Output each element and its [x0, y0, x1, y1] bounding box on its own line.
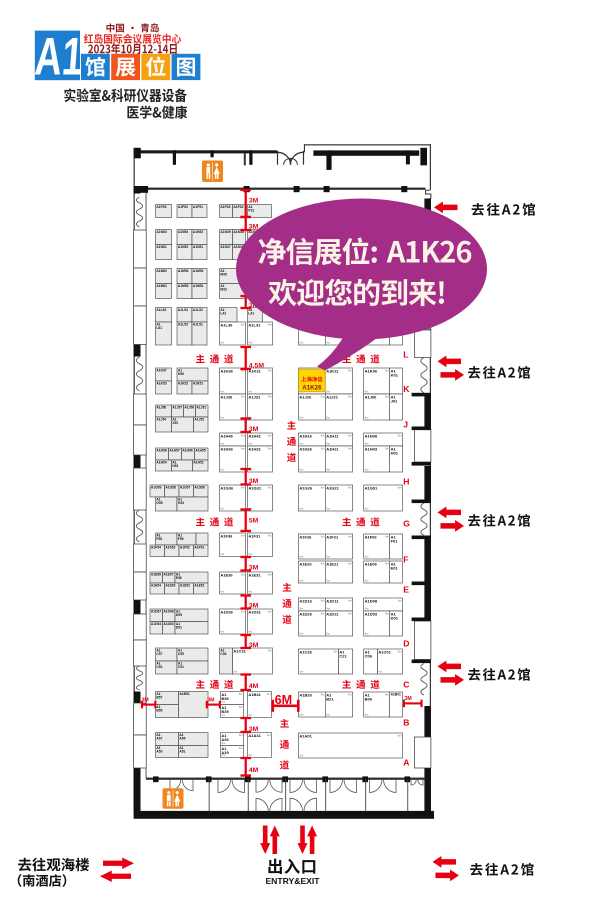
svg-text:A1H26: A1H26	[299, 446, 312, 451]
svg-text:L41: L41	[248, 312, 254, 316]
svg-text:A1J36: A1J36	[220, 394, 233, 399]
svg-text:A1E26: A1E26	[299, 561, 312, 566]
svg-text:H51: H51	[172, 464, 178, 468]
svg-text:A1F51: A1F51	[194, 546, 204, 550]
svg-text:A1E31: A1E31	[248, 572, 261, 577]
svg-text:A1D31: A1D31	[248, 609, 261, 614]
svg-text:A1B01: A1B01	[391, 693, 401, 697]
svg-text:A1H16: A1H16	[299, 433, 312, 438]
svg-text:A1J06: A1J06	[365, 394, 378, 399]
svg-text:A1D26: A1D26	[299, 611, 312, 616]
svg-text:A1F36: A1F36	[220, 533, 233, 538]
svg-text:A1P52: A1P52	[178, 205, 188, 209]
svg-text:E01: E01	[391, 565, 399, 570]
svg-text:L42: L42	[220, 312, 226, 316]
svg-text:A1P33: A1P33	[220, 205, 230, 209]
svg-text:3M: 3M	[249, 603, 259, 610]
svg-text:6M: 6M	[275, 693, 293, 707]
svg-text:A1C01: A1C01	[378, 649, 391, 654]
svg-text:A1F52: A1F52	[180, 546, 190, 550]
svg-text:A1K51: A1K51	[193, 382, 203, 386]
svg-text:C06: C06	[365, 653, 373, 658]
svg-text:A1D03: A1D03	[365, 611, 378, 616]
svg-text:K: K	[403, 384, 410, 394]
svg-text:A1H54: A1H54	[156, 461, 166, 465]
svg-text:B: B	[403, 718, 409, 728]
svg-text:A1M62: A1M62	[156, 269, 167, 273]
svg-text:A1H56: A1H56	[182, 449, 192, 453]
svg-text:A1H03: A1H03	[365, 446, 378, 451]
svg-text:F58: F58	[156, 537, 162, 541]
svg-text:A1J56: A1J56	[184, 406, 194, 410]
svg-text:A1F21: A1F21	[326, 534, 339, 539]
svg-text:A1L52: A1L52	[193, 308, 203, 312]
svg-text:B06: B06	[365, 696, 373, 701]
svg-text:A36: A36	[221, 737, 229, 742]
svg-text:B55: B55	[156, 709, 162, 713]
svg-text:A1G31: A1G31	[248, 485, 261, 490]
svg-text:A1N53: A1N53	[178, 245, 188, 249]
svg-text:J01: J01	[391, 398, 398, 403]
svg-text:A1E36: A1E36	[220, 572, 233, 577]
svg-text:A1M61: A1M61	[156, 284, 167, 288]
svg-text:A1K53: A1K53	[156, 382, 166, 386]
svg-text:C51: C51	[178, 665, 184, 669]
svg-text:M33: M33	[220, 288, 227, 292]
svg-text:A1J26: A1J26	[299, 394, 312, 399]
svg-text:A: A	[403, 758, 409, 768]
svg-text:A1E51: A1E51	[194, 584, 204, 588]
svg-text:C55: C55	[178, 652, 184, 656]
svg-text:A1L54: A1L54	[178, 308, 188, 312]
svg-text:M35: M35	[220, 273, 227, 277]
svg-text:A1L51: A1L51	[193, 323, 203, 327]
svg-text:A1H57: A1H57	[169, 449, 179, 453]
svg-text:A1F06: A1F06	[365, 534, 378, 539]
svg-text:4M: 4M	[249, 767, 259, 774]
svg-text:A1L36: A1L36	[220, 322, 233, 327]
svg-text:C: C	[403, 680, 409, 690]
svg-text:J: J	[403, 420, 408, 430]
svg-text:A1E57: A1E57	[163, 573, 173, 577]
svg-text:3M: 3M	[405, 696, 412, 702]
svg-text:K56: K56	[178, 372, 184, 376]
svg-text:H: H	[403, 477, 409, 487]
svg-text:3M: 3M	[142, 697, 149, 703]
svg-text:P31: P31	[248, 209, 254, 213]
svg-text:A1G57: A1G57	[180, 486, 191, 490]
svg-text:A1B31: A1B31	[248, 692, 261, 697]
svg-text:A1H46: A1H46	[220, 433, 233, 438]
svg-text:A1G36: A1G36	[220, 485, 233, 490]
svg-text:4M: 4M	[249, 683, 259, 690]
svg-text:A1J21: A1J21	[326, 394, 339, 399]
svg-text:A1D63: A1D63	[163, 622, 173, 626]
svg-text:L: L	[403, 350, 408, 360]
svg-text:A1: A1	[33, 26, 86, 86]
svg-text:A1E52: A1E52	[180, 584, 190, 588]
svg-text:3M: 3M	[249, 478, 259, 485]
svg-text:A1J54: A1J54	[156, 418, 166, 422]
svg-text:A1D64: A1D64	[151, 622, 161, 626]
svg-text:A51: A51	[179, 750, 185, 754]
svg-text:A1D66: A1D66	[163, 610, 173, 614]
svg-text:3M: 3M	[249, 198, 259, 205]
svg-text:3M: 3M	[249, 224, 259, 231]
svg-text:A1K57: A1K57	[156, 369, 166, 373]
svg-text:A1B51: A1B51	[179, 692, 189, 696]
svg-text:3M: 3M	[207, 697, 214, 703]
svg-text:A1F53: A1F53	[165, 546, 175, 550]
svg-text:A1F26: A1F26	[299, 534, 312, 539]
svg-text:A1L31: A1L31	[248, 322, 261, 327]
svg-text:A1H31: A1H31	[248, 446, 261, 451]
svg-text:D55: D55	[176, 613, 182, 617]
svg-text:A1E58: A1E58	[151, 573, 161, 577]
svg-text:A1M53: A1M53	[178, 284, 189, 288]
svg-text:A1C31: A1C31	[233, 648, 246, 653]
svg-text:A1N39: A1N39	[220, 230, 230, 234]
svg-text:A1K21: A1K21	[326, 368, 339, 373]
svg-text:F56: F56	[178, 537, 184, 541]
svg-text:A1P53: A1P53	[156, 205, 166, 209]
svg-text:A1E54: A1E54	[151, 584, 161, 588]
svg-text:A1M52: A1M52	[193, 269, 204, 273]
svg-text:A1J31: A1J31	[248, 394, 261, 399]
svg-text:B39: B39	[221, 709, 229, 714]
svg-text:A1C26: A1C26	[299, 649, 312, 654]
svg-text:A1G56: A1G56	[194, 486, 205, 490]
svg-text:A1D67: A1D67	[151, 610, 161, 614]
svg-text:K01: K01	[391, 372, 399, 377]
svg-text:3M: 3M	[249, 642, 259, 649]
svg-text:A57: A57	[156, 737, 162, 741]
svg-text:A1K06: A1K06	[365, 368, 378, 373]
svg-text:A1P32: A1P32	[233, 205, 243, 209]
svg-text:A1D16: A1D16	[299, 598, 312, 603]
svg-text:A1H08: A1H08	[365, 433, 378, 438]
svg-text:A1F54: A1F54	[151, 546, 161, 550]
svg-text:A1K26: A1K26	[302, 385, 322, 392]
svg-text:F: F	[403, 555, 408, 565]
svg-text:A1D36: A1D36	[220, 609, 233, 614]
svg-text:ENTRY&EXIT: ENTRY&EXIT	[265, 876, 320, 886]
svg-text:A1H52: A1H52	[193, 461, 203, 465]
svg-text:A1N37: A1N37	[220, 245, 230, 249]
svg-text:A1H36: A1H36	[220, 446, 233, 451]
svg-text:A1G01: A1G01	[365, 485, 378, 490]
svg-text:A1H11: A1H11	[326, 433, 339, 438]
svg-text:A1K52: A1K52	[178, 382, 188, 386]
svg-text:A1H21: A1H21	[326, 446, 339, 451]
svg-text:J53: J53	[172, 421, 178, 425]
svg-text:A1L63: A1L63	[156, 308, 166, 312]
svg-text:B36: B36	[221, 696, 229, 701]
svg-text:A1M54: A1M54	[178, 269, 189, 273]
svg-text:A1N54: A1N54	[178, 230, 188, 234]
svg-text:A1N51: A1N51	[193, 245, 203, 249]
svg-text:A1G21: A1G21	[326, 485, 339, 490]
svg-text:L61: L61	[156, 326, 162, 330]
svg-text:4.5M: 4.5M	[249, 363, 264, 370]
svg-text:A1P51: A1P51	[193, 205, 203, 209]
svg-text:D01: D01	[391, 615, 399, 620]
svg-text:E56: E56	[176, 576, 182, 580]
svg-text:A1B26: A1B26	[299, 692, 312, 697]
svg-text:A1E06: A1E06	[365, 561, 378, 566]
svg-text:3M: 3M	[249, 565, 259, 572]
svg-text:A1E21: A1E21	[326, 561, 339, 566]
svg-text:A1N61: A1N61	[156, 245, 166, 249]
svg-text:G51: G51	[178, 501, 184, 505]
svg-text:A1J58: A1J58	[156, 406, 166, 410]
svg-text:A1D08: A1D08	[365, 598, 378, 603]
svg-text:G55: G55	[156, 501, 162, 505]
svg-text:A1J57: A1J57	[172, 406, 182, 410]
svg-text:A1J51: A1J51	[196, 406, 206, 410]
svg-text:A1A31: A1A31	[248, 733, 261, 738]
svg-text:A1H41: A1H41	[248, 433, 261, 438]
svg-text:A1H55: A1H55	[195, 449, 205, 453]
svg-text:A53: A53	[156, 750, 162, 754]
svg-text:A1D21: A1D21	[326, 611, 339, 616]
svg-text:C21: C21	[339, 653, 347, 658]
svg-text:C36: C36	[220, 652, 226, 656]
svg-text:H01: H01	[391, 450, 399, 455]
svg-text:A1G59: A1G59	[151, 486, 162, 490]
svg-text:A1N63: A1N63	[156, 230, 166, 234]
svg-text:A1D11: A1D11	[326, 598, 339, 603]
svg-text:D: D	[403, 639, 409, 649]
svg-text:B21: B21	[326, 696, 334, 701]
svg-text:A1G26: A1G26	[299, 485, 312, 490]
svg-text:A1H58: A1H58	[156, 449, 166, 453]
svg-text:A1M51: A1M51	[193, 284, 204, 288]
svg-text:A1K36: A1K36	[220, 368, 233, 373]
svg-text:3M: 3M	[249, 726, 259, 733]
svg-text:A1E53: A1E53	[165, 584, 175, 588]
svg-text:F01: F01	[391, 538, 399, 543]
svg-text:G: G	[403, 519, 410, 529]
svg-text:A1F31: A1F31	[248, 533, 261, 538]
svg-text:5M: 5M	[249, 518, 259, 525]
svg-text:C53: C53	[156, 665, 162, 669]
svg-text:E: E	[403, 585, 409, 595]
svg-text:A55: A55	[179, 737, 185, 741]
svg-text:B57: B57	[156, 696, 162, 700]
svg-text:C57: C57	[156, 652, 162, 656]
svg-text:D51: D51	[176, 626, 182, 630]
svg-text:A1L53: A1L53	[178, 323, 188, 327]
svg-text:A1A01: A1A01	[299, 733, 312, 738]
svg-text:A1N52: A1N52	[193, 230, 203, 234]
svg-text:A1G58: A1G58	[165, 486, 176, 490]
svg-text:3M: 3M	[249, 426, 259, 433]
svg-text:A1J52: A1J52	[194, 418, 204, 422]
